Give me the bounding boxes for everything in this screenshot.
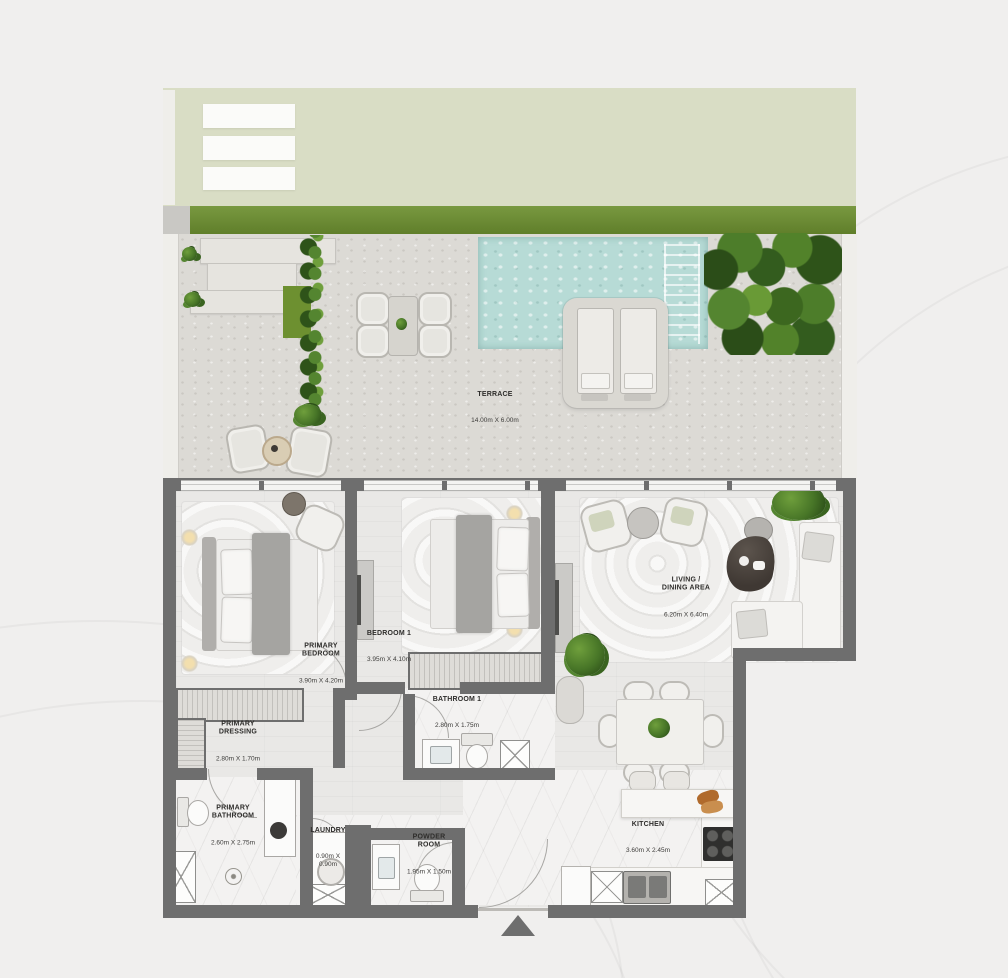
- table-centerpiece-plant: [396, 318, 407, 330]
- exterior-wall-left: [163, 478, 176, 918]
- bed-runner: [252, 533, 290, 655]
- garden-planter: [203, 167, 295, 190]
- toilet: [187, 800, 209, 826]
- room-label-primary-dressing: PRIMARY DRESSING 2.80m X 1.70m: [216, 703, 260, 782]
- wall-corridor: [357, 682, 405, 694]
- appliance-box: [591, 871, 623, 903]
- chair-cushion: [290, 431, 328, 474]
- exterior-wall-bottom-right: [548, 905, 746, 918]
- exterior-wall-right-upper: [843, 478, 856, 661]
- room-name: TERRACE: [471, 391, 519, 399]
- exterior-wall-right-lower: [733, 648, 746, 918]
- lounger-base: [624, 394, 651, 401]
- bedside-lamp: [181, 655, 198, 672]
- chair-cushion: [361, 297, 385, 321]
- primary-bed-headboard: [202, 537, 216, 651]
- pool-ladder: [664, 244, 700, 344]
- plant: [772, 486, 826, 520]
- fridge: [561, 866, 591, 909]
- wall-dressing-right: [333, 700, 345, 768]
- plant: [294, 404, 322, 426]
- terrace-step: [190, 290, 286, 314]
- garden-left-column: [163, 90, 175, 205]
- dressing-wardrobe: [176, 718, 206, 772]
- terrace-left-column: [163, 234, 179, 480]
- room-dims: 1.95m X 1.50m: [407, 868, 451, 876]
- sun-lounger: [577, 308, 614, 394]
- kitchen-sink: [623, 871, 671, 904]
- room-name: BATHROOM 1: [433, 696, 482, 704]
- sink-basin: [649, 876, 667, 898]
- entrance-threshold: [478, 908, 548, 911]
- room-dims: 3.95m X 4.10m: [367, 656, 411, 664]
- room-label-laundry: LAUNDRY 0.90m X 0.90m: [310, 809, 345, 887]
- wall-primary-bedroom: [345, 491, 357, 688]
- dining-chair: [701, 714, 724, 748]
- bed-runner: [456, 515, 492, 633]
- terrace-side-table: [262, 436, 292, 466]
- lounger-pad: [624, 373, 653, 389]
- lounger-pad: [581, 373, 610, 389]
- chair-cushion: [361, 329, 385, 353]
- plant: [565, 634, 605, 676]
- room-dims: 2.80m X 1.75m: [433, 722, 482, 730]
- wall-powder-right: [452, 828, 465, 905]
- room-label-kitchen: KITCHEN 3.60m X 2.45m: [626, 803, 670, 873]
- floor-plan: TERRACE 14.00m X 6.00m PRIMARY BEDROOM 3…: [0, 0, 1008, 978]
- pillow: [496, 572, 530, 617]
- wall-bedroom1-living: [541, 491, 555, 688]
- outdoor-chair: [418, 292, 452, 326]
- shrub-row: [299, 235, 335, 425]
- exterior-wall-bottom-left: [163, 905, 478, 918]
- chair-cushion: [423, 297, 447, 321]
- chair-cushion: [423, 329, 447, 353]
- room-label-primary-bathroom: PRIMARY BATHROOM 2.60m X 2.75m: [211, 787, 255, 866]
- armchair-pillow: [588, 509, 616, 533]
- pillow: [220, 596, 254, 643]
- room-label-living-dining: LIVING / DINING AREA 6.20m X 6.40m: [662, 559, 710, 638]
- room-name: KITCHEN: [626, 821, 670, 829]
- wall-dressing-bottom: [163, 768, 207, 780]
- room-label-terrace: TERRACE 14.00m X 6.00m: [471, 373, 519, 443]
- lounger-base: [581, 394, 608, 401]
- table-decor: [271, 445, 278, 452]
- room-label-powder-room: POWDER ROOM 1.95m X 1.50m: [407, 816, 451, 895]
- coffee-table-decor: [739, 556, 749, 566]
- coffee-table-decor: [753, 561, 765, 570]
- exterior-wall-step: [733, 648, 856, 661]
- outdoor-chair: [356, 324, 390, 358]
- tv-screen: [555, 580, 559, 635]
- room-dims: 3.60m X 2.45m: [626, 847, 670, 855]
- room-dims: 14.00m X 6.00m: [471, 417, 519, 425]
- room-label-primary-bedroom: PRIMARY BEDROOM 3.90m X 4.20m: [299, 625, 343, 704]
- armchair-pillow: [670, 505, 695, 526]
- room-name: LAUNDRY: [310, 827, 345, 835]
- garden-planter: [203, 136, 295, 160]
- pillow: [496, 526, 530, 571]
- pillow: [220, 548, 254, 595]
- room-name: LIVING / DINING AREA: [662, 577, 710, 594]
- powder-vanity: [372, 844, 400, 890]
- appliance-box: [308, 884, 348, 906]
- room-name: POWDER ROOM: [407, 834, 451, 851]
- sofa-pillow: [801, 531, 835, 563]
- room-dims: 2.60m X 2.75m: [211, 839, 255, 847]
- room-dims: 3.90m X 4.20m: [299, 677, 343, 685]
- wall-chunk: [345, 825, 371, 905]
- room-name: PRIMARY BEDROOM: [299, 643, 343, 660]
- entrance-direction-icon: [501, 915, 535, 936]
- room-dims: 6.20m X 6.40m: [662, 611, 710, 619]
- sink-basin: [628, 876, 646, 898]
- shower-shaft-box: [500, 740, 530, 771]
- wall-bathroom1-bottom: [403, 768, 555, 780]
- chair-cushion: [230, 429, 266, 470]
- room-dims: 2.80m X 1.70m: [216, 755, 260, 763]
- window: [181, 480, 341, 491]
- outdoor-chair: [418, 324, 452, 358]
- wash-basin: [430, 746, 452, 764]
- room-name: PRIMARY BATHROOM: [211, 805, 255, 822]
- plant: [182, 247, 197, 261]
- bedroom-side-table: [282, 492, 306, 516]
- window: [364, 480, 538, 491]
- plant: [184, 292, 201, 307]
- garden-planter: [203, 104, 295, 128]
- ottoman: [556, 676, 584, 724]
- sun-lounger: [620, 308, 657, 394]
- bedside-lamp: [181, 529, 198, 546]
- cooktop: [703, 827, 737, 861]
- outdoor-chair: [356, 292, 390, 326]
- hedge-planting: [704, 233, 842, 355]
- dining-table-plant: [648, 718, 670, 738]
- round-basin: [270, 822, 287, 839]
- terrace-right-column: [841, 234, 857, 480]
- room-label-bedroom1: BEDROOM 1 3.95m X 4.10m: [367, 612, 411, 682]
- sofa-pillow: [736, 609, 769, 640]
- room-dims: 0.90m X 0.90m: [310, 853, 345, 869]
- tv-screen: [357, 575, 361, 625]
- wash-basin: [378, 857, 395, 879]
- room-label-bathroom1: BATHROOM 1 2.80m X 1.75m: [433, 678, 482, 748]
- room-name: BEDROOM 1: [367, 630, 411, 638]
- room-name: PRIMARY DRESSING: [216, 721, 260, 738]
- living-round-table: [627, 507, 659, 539]
- primary-vanity: [264, 779, 296, 857]
- window: [566, 480, 836, 491]
- shower-head-icon: [225, 868, 242, 885]
- terrace-corner-block: [163, 206, 190, 234]
